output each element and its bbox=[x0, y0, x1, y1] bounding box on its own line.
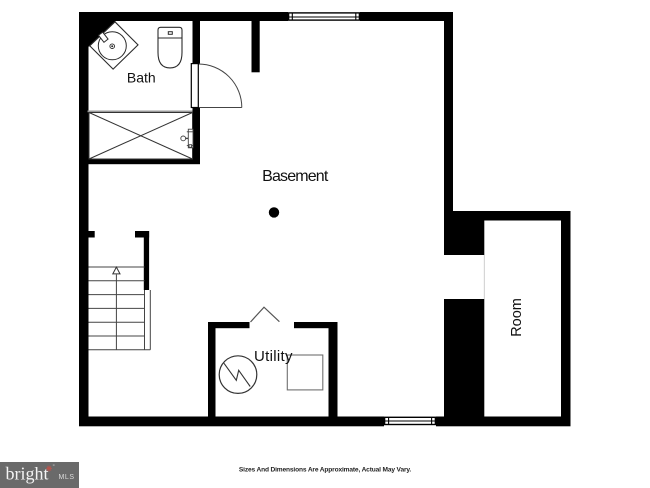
svg-text:Sizes And Dimensions Are Appro: Sizes And Dimensions Are Approximate, Ac… bbox=[239, 467, 411, 474]
svg-text:MLS: MLS bbox=[59, 474, 75, 481]
svg-text:Basement: Basement bbox=[262, 168, 329, 185]
svg-text:bright: bright bbox=[6, 464, 49, 484]
svg-text:Utility: Utility bbox=[254, 348, 293, 365]
svg-text:Room: Room bbox=[509, 298, 525, 337]
svg-text:Bath: Bath bbox=[127, 69, 156, 85]
